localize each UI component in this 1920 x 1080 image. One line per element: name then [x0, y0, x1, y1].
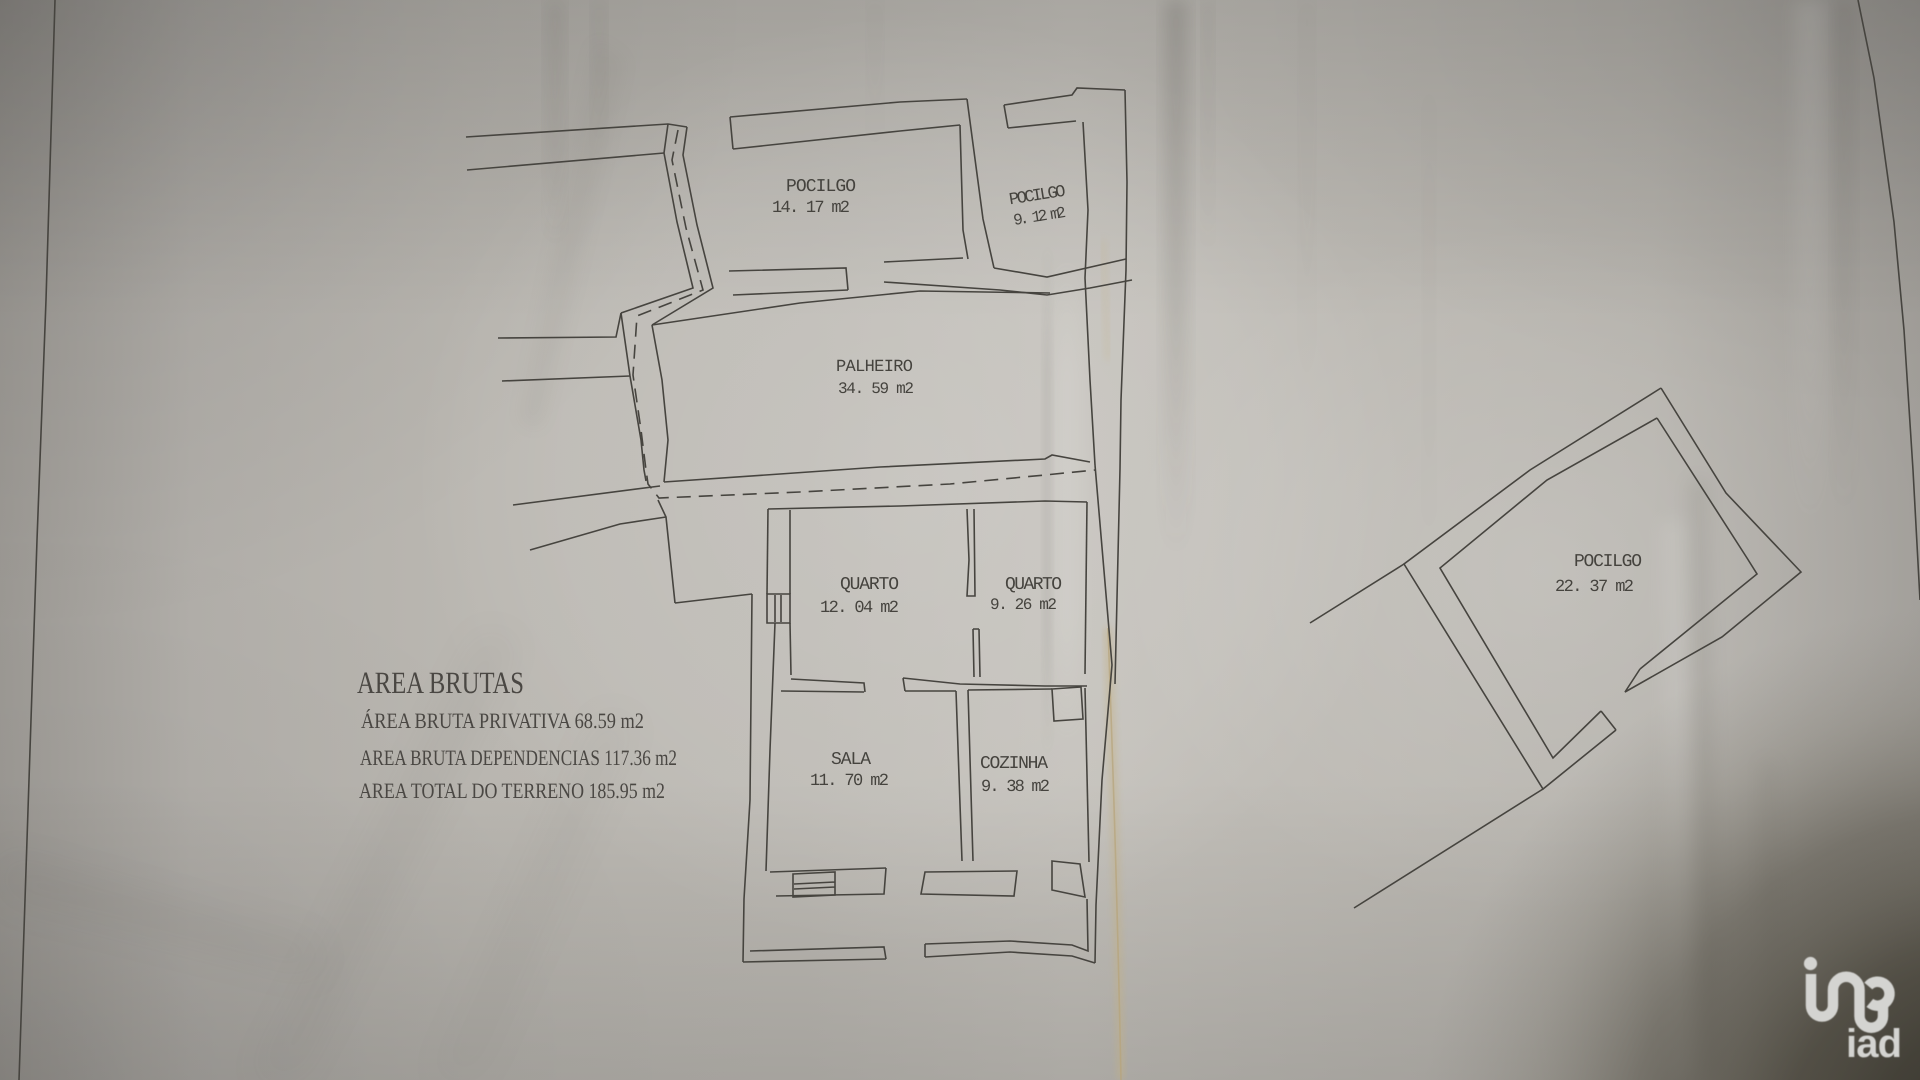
- svg-text:QUARTO: QUARTO: [840, 575, 899, 595]
- svg-text:QUARTO: QUARTO: [1005, 575, 1062, 595]
- svg-text:22. 37 m2: 22. 37 m2: [1555, 578, 1634, 597]
- svg-text:AREA TOTAL DO TERRENO 185.95 m: AREA TOTAL DO TERRENO 185.95 m2: [359, 778, 665, 803]
- svg-text:12. 04 m2: 12. 04 m2: [820, 599, 899, 618]
- svg-text:9. 38 m2: 9. 38 m2: [981, 778, 1050, 797]
- svg-text:AREA BRUTA DEPENDENCIAS 117.36: AREA BRUTA DEPENDENCIAS 117.36 m2: [360, 745, 677, 770]
- svg-text:34. 59 m2: 34. 59 m2: [838, 380, 914, 398]
- svg-text:iad: iad: [1846, 1022, 1902, 1066]
- svg-text:11. 70 m2: 11. 70 m2: [810, 772, 889, 791]
- svg-text:POCILGO: POCILGO: [1574, 552, 1642, 572]
- svg-text:14. 17 m2: 14. 17 m2: [772, 199, 850, 218]
- svg-text:AREA BRUTAS: AREA BRUTAS: [357, 665, 524, 700]
- svg-text:9. 26 m2: 9. 26 m2: [990, 596, 1057, 614]
- svg-text:SALA: SALA: [831, 750, 871, 770]
- svg-text:COZINHA: COZINHA: [980, 754, 1048, 774]
- svg-text:PALHEIRO: PALHEIRO: [836, 358, 913, 377]
- svg-text:ÁREA BRUTA PRIVATIVA 68.59 m2: ÁREA BRUTA PRIVATIVA 68.59 m2: [361, 708, 644, 733]
- svg-text:POCILGO: POCILGO: [786, 177, 856, 197]
